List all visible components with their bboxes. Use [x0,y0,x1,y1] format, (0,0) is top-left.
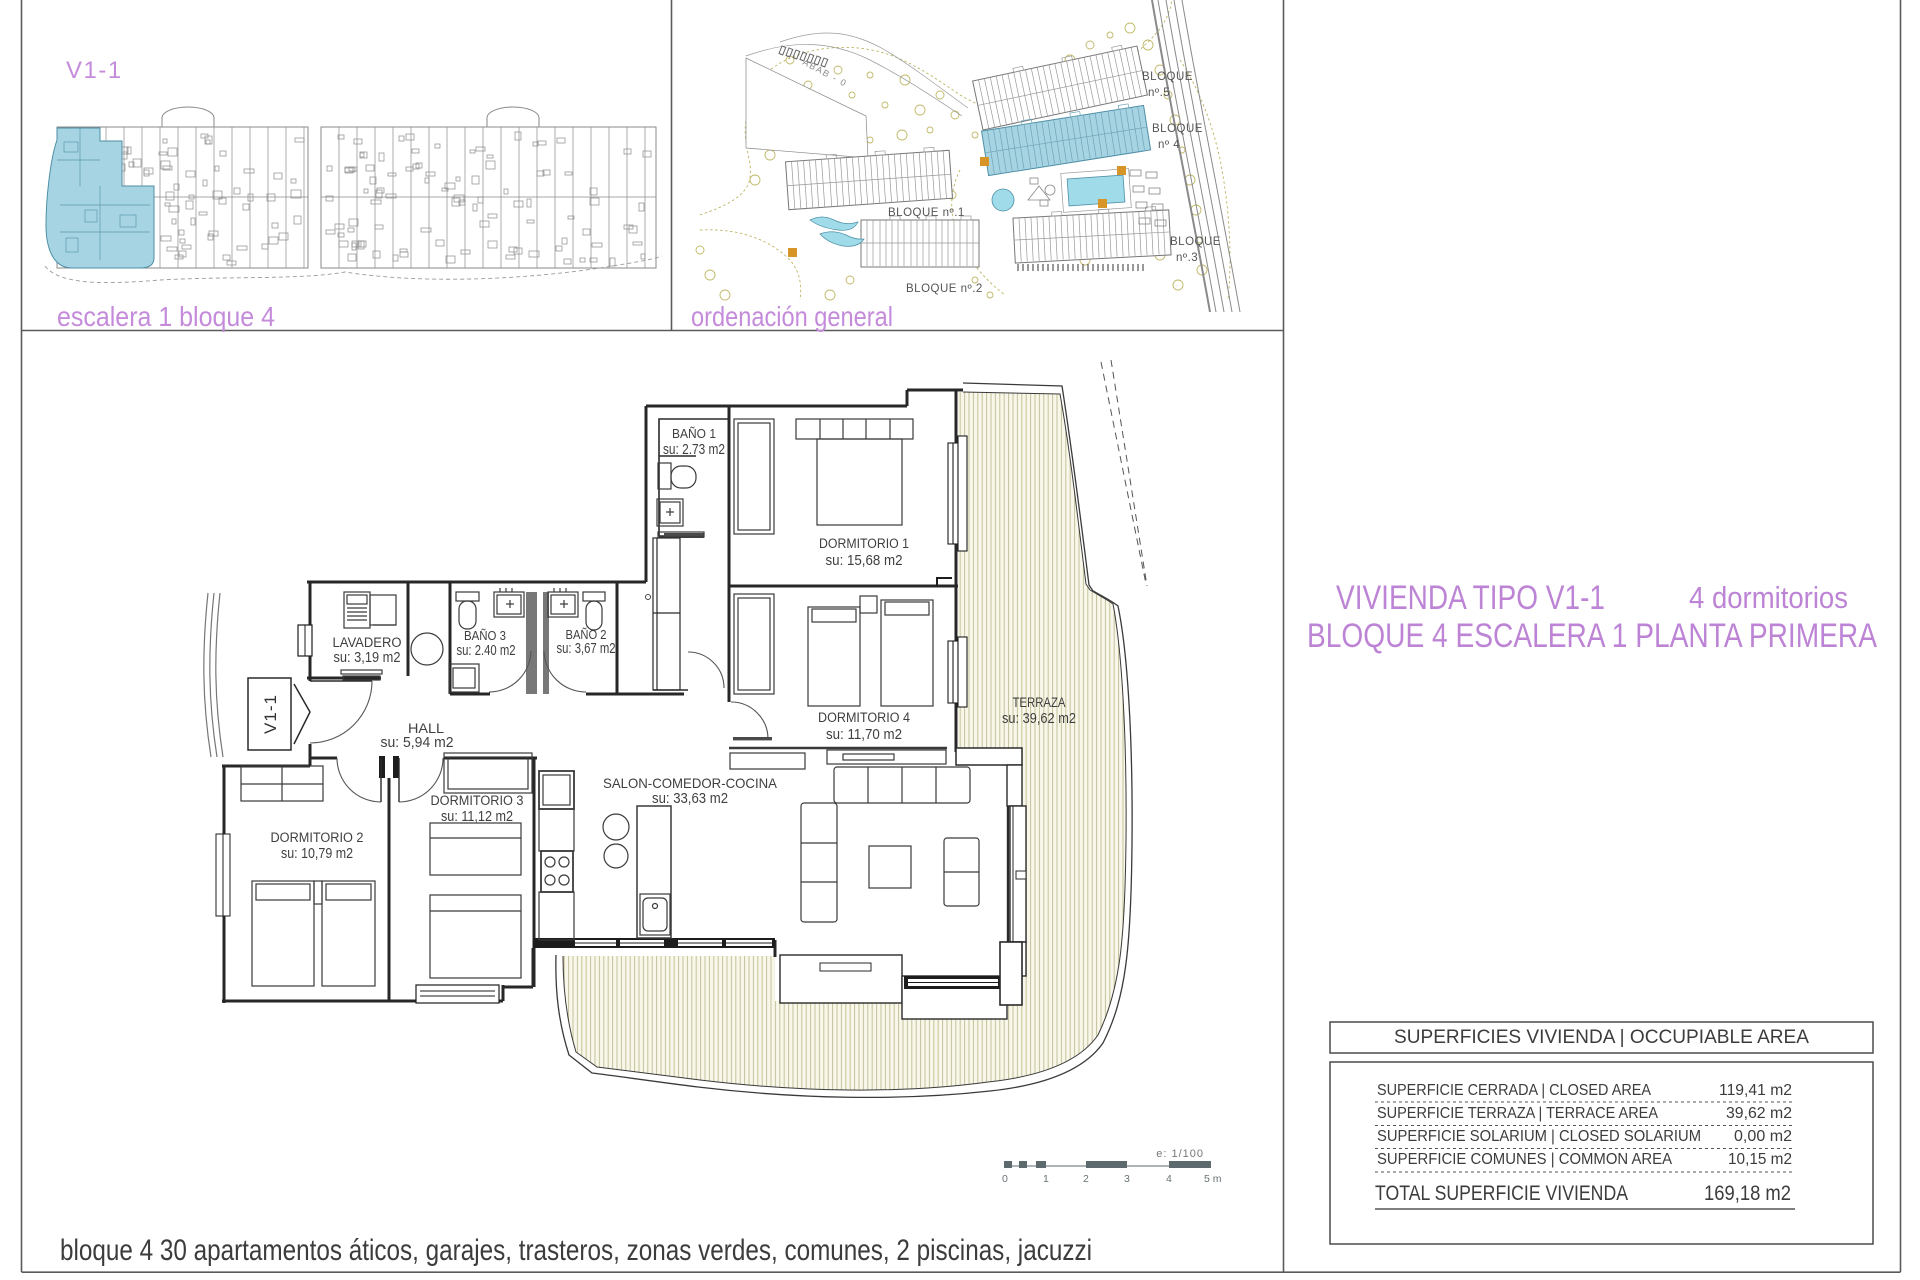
svg-text:nº 4: nº 4 [1158,139,1180,151]
svg-text:BLOQUE nº.2: BLOQUE nº.2 [906,283,983,295]
svg-text:BLOQUE 4 ESCALERA 1 PLANTA P: BLOQUE 4 ESCALERA 1 PLANTA PRIMERA [1307,617,1877,655]
svg-text:HALL: HALL [408,720,444,736]
svg-text:su: 3,67 m2: su: 3,67 m2 [557,641,616,657]
svg-text:2: 2 [1083,1173,1089,1185]
svg-text:VIVIENDA TIPO V1-1: VIVIENDA TIPO V1-1 [1336,579,1605,617]
svg-text:SUPERFICIE CERRADA | CLOSED AR: SUPERFICIE CERRADA | CLOSED AREA [1377,1082,1651,1099]
svg-text:nº.3: nº.3 [1176,252,1198,264]
svg-text:su: 10,79 m2: su: 10,79 m2 [281,845,353,862]
svg-text:169,18 m2: 169,18 m2 [1704,1182,1791,1205]
svg-text:BLOQUE nº.1: BLOQUE nº.1 [888,207,965,219]
svg-text:V1-1: V1-1 [66,57,123,84]
svg-text:su: 11,12 m2: su: 11,12 m2 [441,808,513,825]
svg-text:su: 3,19 m2: su: 3,19 m2 [334,650,401,666]
svg-text:nº.5: nº.5 [1148,87,1170,99]
svg-text:BAÑO 2: BAÑO 2 [566,627,607,642]
svg-text:0: 0 [1002,1173,1008,1185]
svg-text:su: 11,70 m2: su: 11,70 m2 [826,726,902,743]
svg-text:su: 2.40 m2: su: 2.40 m2 [457,643,516,659]
svg-text:1: 1 [1043,1173,1049,1185]
svg-text:V1-1: V1-1 [261,694,280,734]
svg-text:su: 15,68 m2: su: 15,68 m2 [826,552,903,569]
svg-text:5 m: 5 m [1204,1173,1222,1185]
svg-text:0,00 m2: 0,00 m2 [1734,1128,1792,1145]
svg-text:BLOQUE: BLOQUE [1152,123,1203,135]
svg-text:3: 3 [1124,1173,1130,1185]
svg-text:SUPERFICIE COMUNES | COMMON AR: SUPERFICIE COMUNES | COMMON AREA [1377,1151,1672,1168]
svg-text:TOTAL SUPERFICIE VIVIENDA: TOTAL SUPERFICIE VIVIENDA [1375,1182,1628,1205]
svg-text:TERRAZA: TERRAZA [1013,695,1066,710]
svg-text:SUPERFICIE SOLARIUM | CLOSED S: SUPERFICIE SOLARIUM | CLOSED SOLARIUM [1377,1128,1701,1145]
svg-text:escalera 1 bloque 4: escalera 1 bloque 4 [57,301,275,332]
svg-text:SUPERFICIE TERRAZA | TERRACE: SUPERFICIE TERRAZA | TERRACE AREA [1377,1105,1658,1122]
svg-text:39,62 m2: 39,62 m2 [1726,1105,1792,1122]
svg-text:LAVADERO: LAVADERO [333,635,402,650]
svg-text:BAÑO 1: BAÑO 1 [672,426,716,441]
svg-text:SUPERFICIES VIVIENDA | OCCUPIA: SUPERFICIES VIVIENDA | OCCUPIABLE AREA [1394,1027,1809,1048]
svg-text:su: 39,62 m2: su: 39,62 m2 [1002,711,1076,727]
svg-text:DORMITORIO 2: DORMITORIO 2 [271,830,364,845]
svg-text:ordenación general: ordenación general [691,301,893,332]
svg-text:su: 5,94 m2: su: 5,94 m2 [381,735,454,751]
svg-text:10,15 m2: 10,15 m2 [1728,1151,1792,1168]
svg-text:4: 4 [1166,1173,1172,1185]
svg-text:SALON-COMEDOR-COCINA: SALON-COMEDOR-COCINA [603,775,778,791]
svg-text:119,41 m2: 119,41 m2 [1719,1082,1792,1099]
svg-text:ABAB - 0: ABAB - 0 [801,57,849,89]
svg-text:4 dormitorios: 4 dormitorios [1689,580,1848,615]
svg-text:su: 33,63 m2: su: 33,63 m2 [652,791,728,807]
svg-text:DORMITORIO 4: DORMITORIO 4 [818,710,910,725]
svg-text:BLOQUE: BLOQUE [1142,71,1193,83]
svg-text:BAÑO 3: BAÑO 3 [464,628,506,643]
svg-text:DORMITORIO 3: DORMITORIO 3 [431,793,524,808]
svg-text:e: 1/100: e: 1/100 [1156,1148,1204,1160]
svg-text:su: 2.73 m2: su: 2.73 m2 [663,442,725,458]
svg-text:DORMITORIO 1: DORMITORIO 1 [819,536,909,551]
svg-text:bloque 4 30 apartamentos ático: bloque 4 30 apartamentos áticos, garajes… [60,1234,1092,1267]
svg-text:BLOQUE: BLOQUE [1170,236,1221,248]
